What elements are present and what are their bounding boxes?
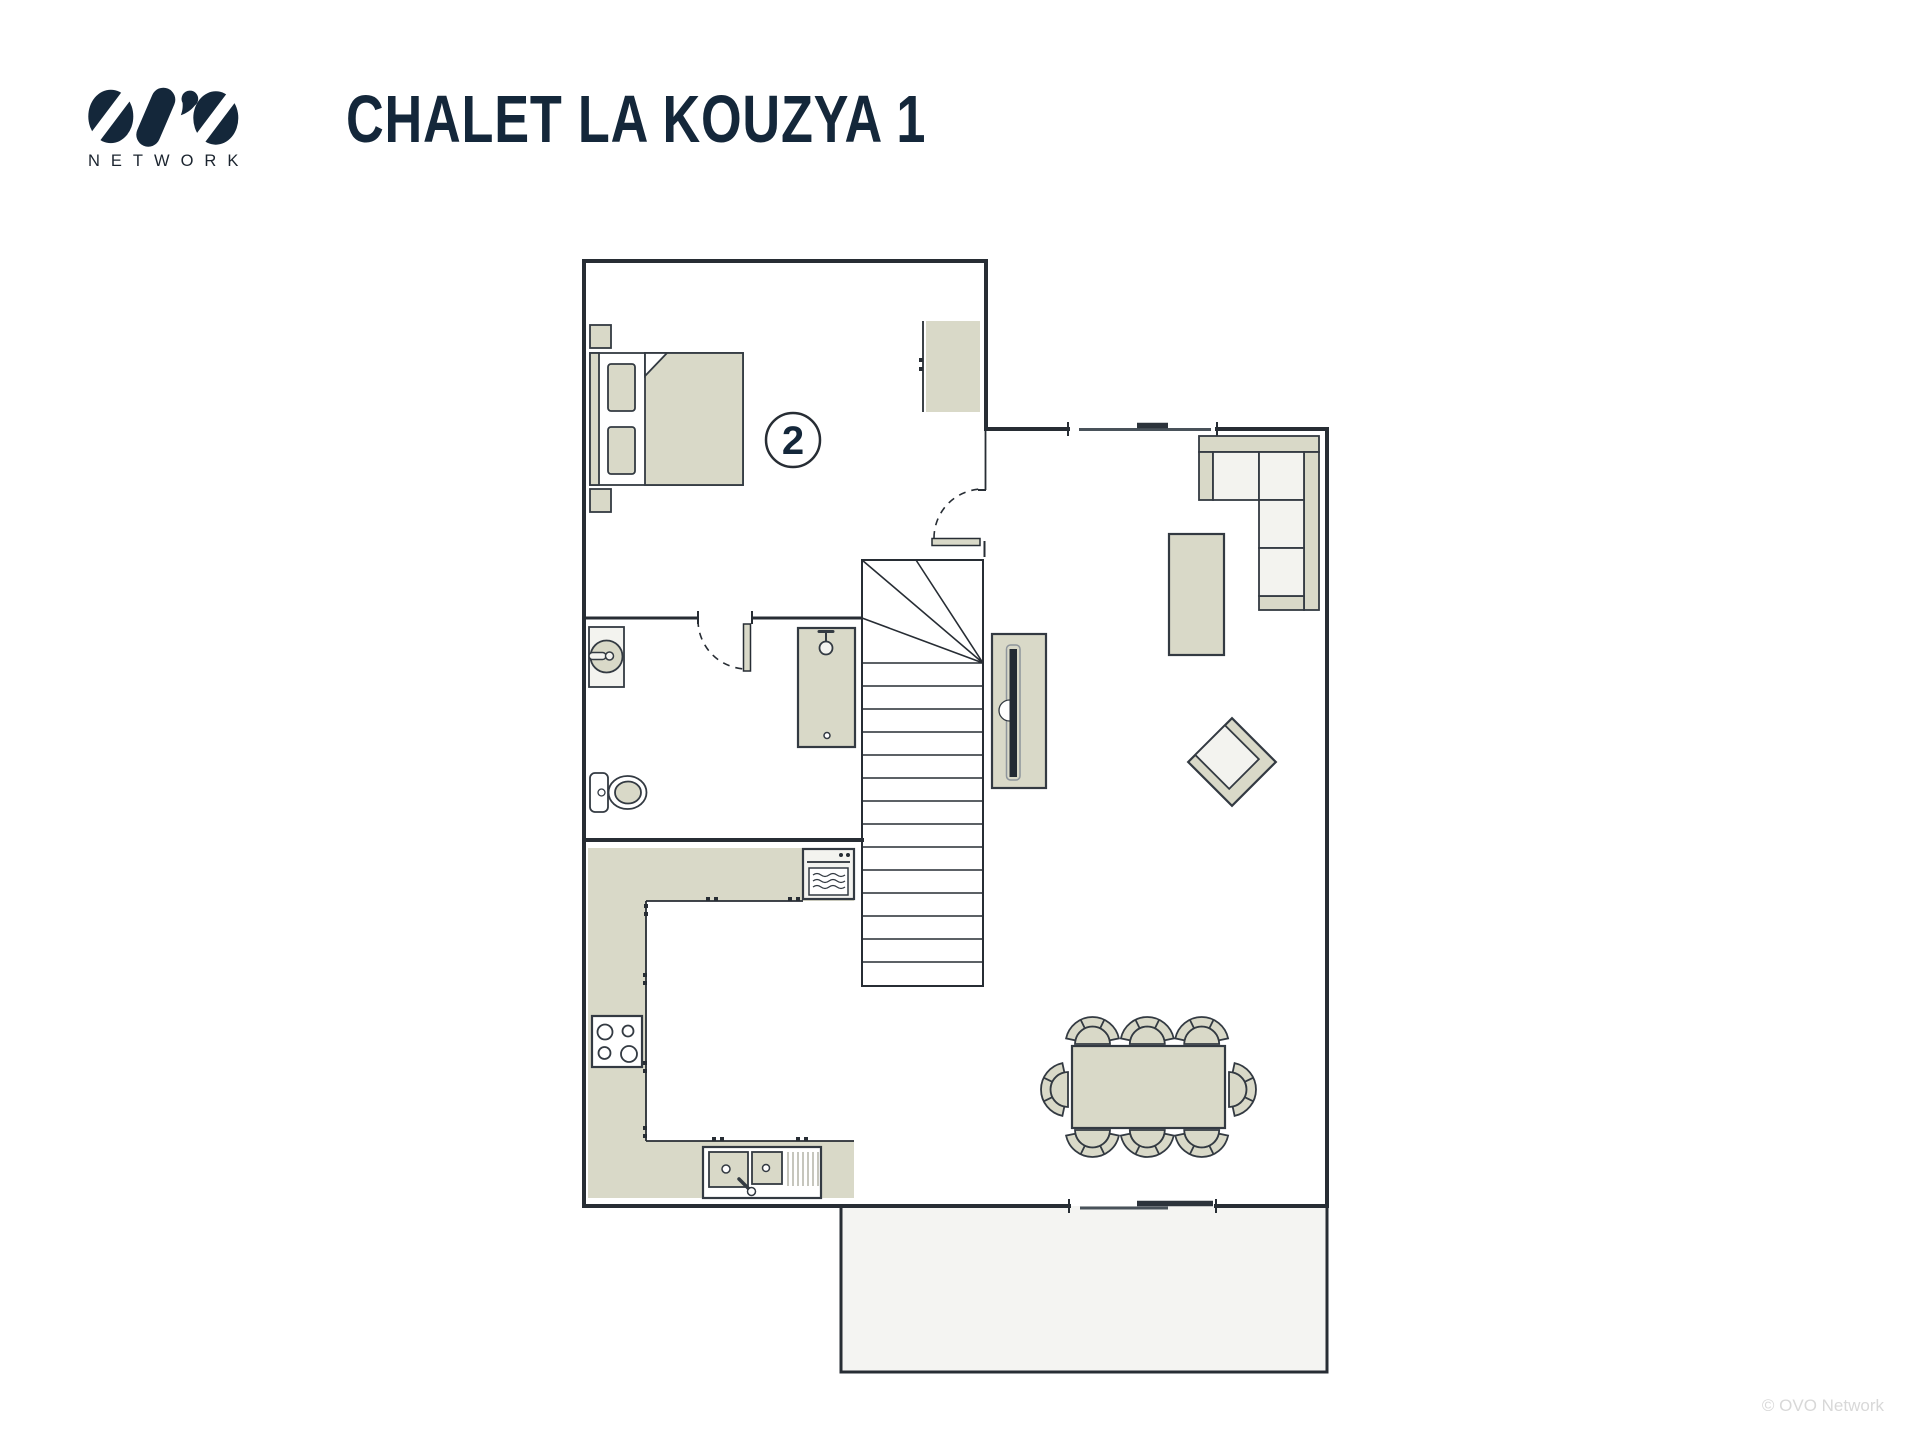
toilet — [590, 773, 647, 812]
oven — [803, 849, 854, 899]
dining-chair — [1121, 1017, 1174, 1044]
dining-chair — [1066, 1017, 1119, 1044]
copyright-text: © OVO Network — [1762, 1396, 1884, 1416]
washbasin — [589, 627, 624, 687]
chaise-longue — [1169, 534, 1224, 655]
dining-chair — [1175, 1017, 1228, 1044]
room-number-badge: 2 — [766, 413, 820, 467]
floor-plan: 2 — [0, 0, 1920, 1440]
armchair — [1188, 718, 1276, 806]
dining-chair — [1066, 1130, 1119, 1157]
kitchen-sink — [703, 1147, 821, 1198]
dining-area — [1041, 1017, 1256, 1157]
bedroom: 2 — [590, 321, 980, 512]
bathroom — [589, 627, 855, 812]
tv — [1010, 649, 1018, 777]
staircase — [862, 560, 983, 986]
bathroom-door — [698, 611, 752, 671]
dining-chair — [1041, 1063, 1068, 1116]
nightstand — [590, 325, 611, 348]
dining-table — [1072, 1046, 1225, 1128]
living-room-window — [1068, 422, 1217, 436]
dining-chair — [1175, 1130, 1228, 1157]
cabinet-handle-dots — [643, 897, 808, 1141]
hob — [592, 1016, 642, 1067]
double-bed — [590, 353, 743, 485]
dining-chair — [1229, 1063, 1256, 1116]
room-number-label: 2 — [782, 419, 804, 463]
terrace — [841, 1206, 1327, 1372]
tv-cabinet — [992, 634, 1046, 788]
nightstand — [590, 489, 611, 512]
dining-chair — [1121, 1130, 1174, 1157]
shower — [798, 628, 855, 747]
living-room — [992, 436, 1319, 806]
bedroom-door — [932, 489, 986, 546]
wardrobe — [919, 321, 980, 412]
